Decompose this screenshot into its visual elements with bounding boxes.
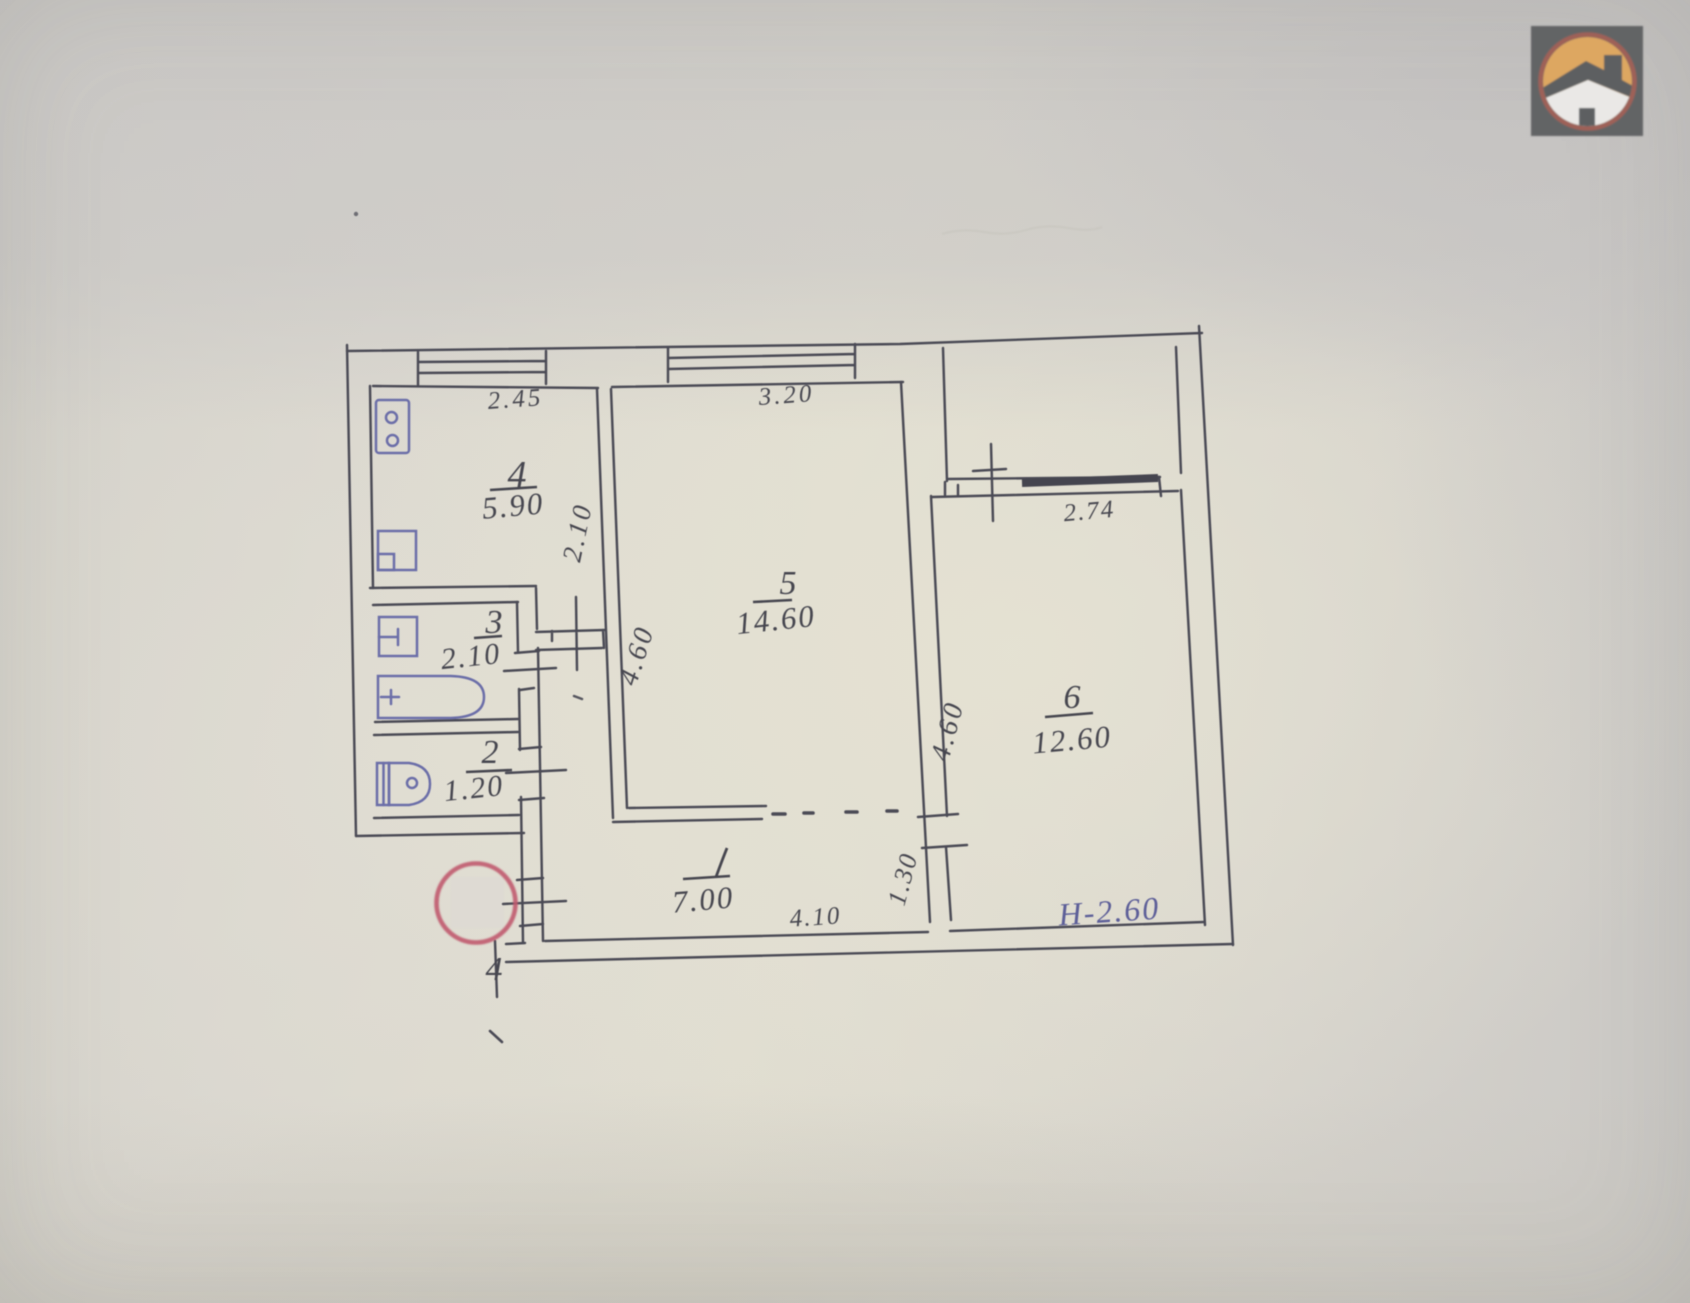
svg-text:7.00: 7.00 [671,879,736,919]
svg-text:2: 2 [482,734,499,771]
svg-text:5: 5 [780,565,797,602]
svg-text:1.30: 1.30 [882,849,924,908]
svg-text:H-2.60: H-2.60 [1056,890,1161,933]
svg-text:6: 6 [1064,679,1081,716]
svg-text:1.20: 1.20 [442,769,506,808]
svg-text:3.20: 3.20 [757,380,815,411]
svg-text:2.10: 2.10 [556,500,598,564]
svg-text:4.10: 4.10 [789,902,843,933]
svg-text:2.74: 2.74 [1062,496,1116,527]
svg-text:12.60: 12.60 [1031,719,1113,761]
svg-text:2.45: 2.45 [487,384,544,415]
svg-text:14.60: 14.60 [734,598,817,641]
svg-text:5.90: 5.90 [481,485,546,525]
svg-text:4: 4 [486,951,503,988]
svg-text:2.10: 2.10 [439,637,503,676]
svg-text:4.60: 4.60 [925,697,971,764]
